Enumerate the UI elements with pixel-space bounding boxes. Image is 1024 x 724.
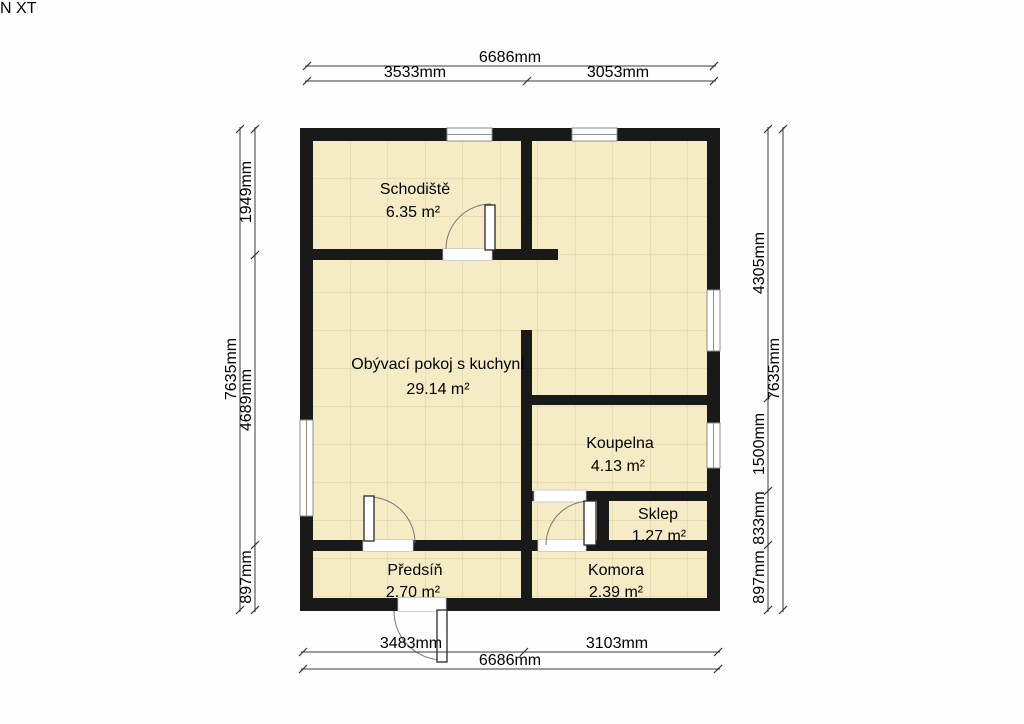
room-area-schodiste: 6.35 m² [386,204,441,221]
room-name-obyvaci: Obývací pokoj s kuchyní [351,356,525,373]
dim-right-lower: 897mm [751,550,768,603]
dim-top-total: 6686mm [479,49,541,66]
dim-bottom-right: 3103mm [586,635,648,652]
opening-koupelna [534,490,586,502]
room-name-schodiste: Schodiště [380,181,450,198]
wall-schodiste-bottom-b [492,249,558,260]
door-leaf-schodiste [485,205,495,250]
floorplan-page: N XT [0,0,1024,724]
wall-outer-left [300,128,313,611]
wall-koupelna-top [531,395,707,405]
dim-top-left: 3533mm [384,64,446,81]
dim-right-mid1: 1500mm [751,413,768,475]
room-name-koupelna: Koupelna [586,435,654,452]
dim-right-upper: 4305mm [751,232,768,294]
dim-bottom-left: 3483mm [380,635,442,652]
wall-schodiste-bottom-a [313,249,443,260]
room-name-sklep: Sklep [638,506,678,523]
room-area-komora: 2.39 m² [589,584,644,601]
opening-komora-nook [538,540,586,552]
room-area-predsin: 2.70 m² [386,584,441,601]
paper-shadow-top-left [0,0,180,170]
dim-right-total: 7635mm [766,338,783,400]
dim-right-mid2: 833mm [751,491,768,544]
dim-left-lower: 897mm [238,550,255,603]
room-name-komora: Komora [588,562,644,579]
dim-top-right: 3053mm [587,64,649,81]
wall-outer-bottom [300,598,720,611]
dim-left-upper: 1949mm [238,161,255,223]
dim-bottom-total: 6686mm [479,652,541,669]
door-leaf-sklep [584,501,596,545]
dim-left-middle: 4689mm [238,369,255,431]
room-name-predsin: Předsíň [387,562,442,579]
wall-sklep-left [597,501,609,541]
room-area-obyvaci: 29.14 m² [406,381,470,398]
wall-schodiste-right [521,141,532,249]
room-area-sklep: 1.27 m² [632,528,687,545]
door-leaf-predsin [364,496,374,541]
room-area-koupelna: 4.13 m² [591,458,646,475]
wall-outer-top [300,128,720,141]
wall-outer-right [707,128,720,611]
